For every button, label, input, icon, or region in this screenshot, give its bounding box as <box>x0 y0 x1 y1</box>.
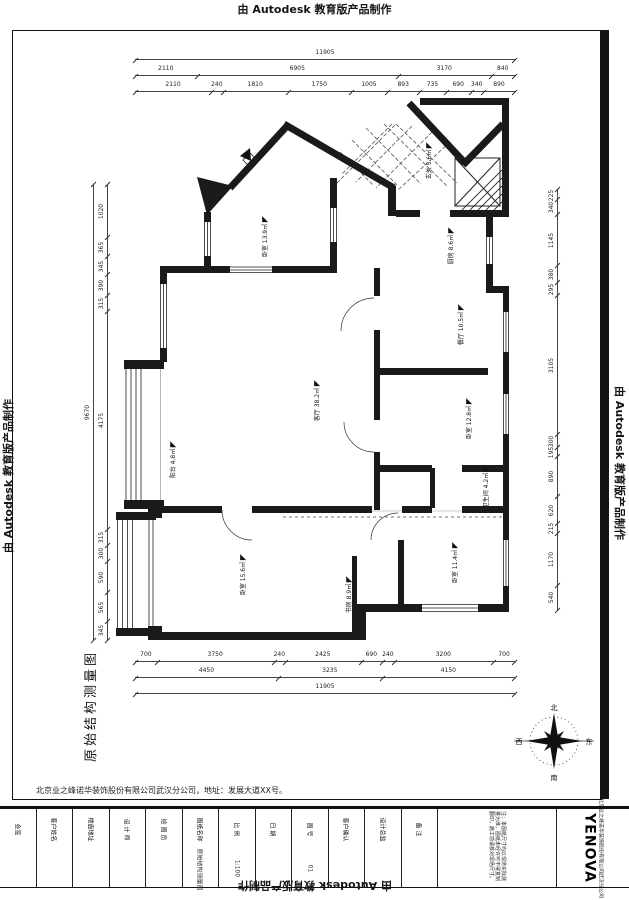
dim-value: 2110 <box>135 80 211 91</box>
dim-value: 225 <box>546 190 557 200</box>
title-block-cell-label: 绘 图 员 <box>159 819 168 841</box>
room-label: 玄关 5.6㎡ <box>424 142 433 179</box>
room-flag-icon <box>452 542 458 548</box>
room-name-area: 卧室 11.4㎡ <box>450 550 459 583</box>
room-name-area: 卫生间 4.2㎡ <box>481 473 490 508</box>
title-block-cell: 图 号01 <box>291 809 328 887</box>
dim-value: 300 <box>96 546 107 562</box>
dim-bottom-row1: 700375024024256902403200700 <box>135 650 515 662</box>
room-flag-icon <box>426 142 432 148</box>
room-label: 餐厅 10.5㎡ <box>456 304 465 345</box>
title-block-cell-label: 设计总监 <box>378 817 387 841</box>
title-block-cell-label: 备 注 <box>415 823 424 837</box>
dim-value: 1145 <box>546 215 557 266</box>
title-block-cell-label: 客户确认 <box>342 817 351 841</box>
title-block-cell-label: 日 期 <box>269 823 278 837</box>
dim-value: 295 <box>546 283 557 296</box>
company-name: 北京业之峰诺华装饰股份有限公司武汉分公司 <box>598 798 605 898</box>
dim-value: 1170 <box>546 534 557 586</box>
autodesk-watermark-top: 由 Autodesk 教育版产品制作 <box>237 1 391 17</box>
dim-value: 2425 <box>285 650 361 661</box>
room-name-area: 客厅 38.2㎡ <box>312 388 321 421</box>
room-name-area: 厨房 8.6㎡ <box>446 235 455 264</box>
dim-value: 390 <box>96 275 107 295</box>
room-flag-icon <box>170 441 176 447</box>
title-block-cell: 客户确认 <box>328 809 365 887</box>
room-name-area: 阳台 4.8㎡ <box>168 449 177 478</box>
dim-value: 11905 <box>135 48 515 59</box>
room-name-area: 卧室 13.9㎡ <box>260 224 269 257</box>
dim-value: 240 <box>211 80 222 91</box>
dim-value: 240 <box>274 650 285 661</box>
room-label: 阳台 4.8㎡ <box>168 441 177 478</box>
dim-value: 3750 <box>157 650 274 661</box>
dim-value: 380 <box>546 266 557 283</box>
title-block-cell: 图纸名称原始结构测量图 <box>182 809 219 887</box>
dim-value: 690 <box>446 80 471 91</box>
room-name-area: 书房 8.9㎡ <box>344 584 353 613</box>
dim-value: 195 <box>546 448 557 457</box>
dim-value: 4175 <box>96 312 107 530</box>
room-flag-icon <box>262 216 268 222</box>
title-block-cell-label: 比 例 <box>232 823 241 837</box>
dim-top-row1: 211069053170840 <box>135 64 515 76</box>
title-block-cell: 客户姓名 <box>36 809 73 887</box>
room-label: 卫生间 4.2㎡ <box>481 465 490 508</box>
dim-value: 3105 <box>546 296 557 434</box>
dim-value: 9670 <box>82 185 93 640</box>
dim-value: 735 <box>419 80 446 91</box>
title-block-cell: 备 注 <box>401 809 438 887</box>
title-block-cell-value: 原始结构测量图 <box>196 848 205 890</box>
title-block-cell: 比 例1:100 <box>218 809 255 887</box>
room-flag-icon <box>458 304 464 310</box>
title-block-cell: 设计总监 <box>364 809 401 887</box>
yenova-logo: YENOVA <box>582 798 598 898</box>
dim-value: 3200 <box>394 650 494 661</box>
title-block-cell-value: 1:100 <box>233 860 240 877</box>
title-block-cell-label: 图纸名称 <box>196 817 205 841</box>
dim-value: 1810 <box>223 80 288 91</box>
notes-text: 注：本图纸尺寸均以现场实际测量为准，图纸未经许可不得复制翻印，施工前请核对现场尺… <box>488 811 506 885</box>
dim-value: 690 <box>361 650 382 661</box>
dim-value: 565 <box>96 593 107 622</box>
dim-value: 700 <box>493 650 515 661</box>
dim-value: 365 <box>96 238 107 257</box>
dim-value: 590 <box>96 562 107 593</box>
room-label: 卧室 12.8㎡ <box>464 398 473 439</box>
dim-value: 540 <box>546 586 557 610</box>
dim-value: 2110 <box>135 64 197 75</box>
title-block-cell: 设 计 师 <box>109 809 146 887</box>
dim-value: 315 <box>96 296 107 312</box>
room-label: 卧室 11.4㎡ <box>450 542 459 583</box>
drawing-title: 原始结构测量图 <box>80 650 99 762</box>
dim-value: 1020 <box>96 185 107 238</box>
dim-value: 6905 <box>197 64 398 75</box>
title-block-cells: 会签客户姓名楼盘地址设 计 师绘 图 员图纸名称原始结构测量图比 例1:100日… <box>0 809 437 887</box>
sheet-border-heavy-bar <box>600 30 609 799</box>
title-block: 会签客户姓名楼盘地址设 计 师绘 图 员图纸名称原始结构测量图比 例1:100日… <box>0 806 629 888</box>
title-block-notes-cell: 注：本图纸尺寸均以现场实际测量为准，图纸未经许可不得复制翻印，施工前请核对现场尺… <box>437 809 556 887</box>
room-name-area: 卧室 12.8㎡ <box>464 406 473 439</box>
dim-value: 240 <box>382 650 393 661</box>
dim-left-total: 9670 <box>82 185 94 640</box>
dim-value: 4450 <box>135 666 278 677</box>
dim-top-row2: 2110240181017501005893735690340890 <box>135 80 515 92</box>
dim-value: 840 <box>491 64 516 75</box>
dim-value: 345 <box>96 257 107 275</box>
room-label: 客厅 38.2㎡ <box>312 380 321 421</box>
dim-value: 893 <box>387 80 419 91</box>
title-block-cell: 会签 <box>0 809 36 887</box>
title-block-cell-label: 设 计 师 <box>123 819 132 841</box>
room-label: 卧室 15.6㎡ <box>238 554 247 595</box>
room-flag-icon <box>346 576 352 582</box>
title-block-cell-label: 楼盘地址 <box>86 817 95 841</box>
room-label: 书房 8.9㎡ <box>344 576 353 613</box>
dim-value: 700 <box>135 650 157 661</box>
room-flag-icon <box>483 465 489 471</box>
title-block-cell-label: 图 号 <box>305 823 314 837</box>
dim-value: 345 <box>96 622 107 640</box>
title-block-cell-label: 客户姓名 <box>50 817 59 841</box>
dim-value: 620 <box>546 497 557 525</box>
room-flag-icon <box>240 554 246 560</box>
dim-value: 340 <box>471 80 483 91</box>
dim-bottom-total: 11905 <box>135 682 515 694</box>
dim-value: 890 <box>546 457 557 497</box>
title-block-cell-value: 01 <box>306 865 313 873</box>
title-block-cell: 楼盘地址 <box>72 809 109 887</box>
title-block-cell: 绘 图 员 <box>145 809 182 887</box>
title-block-company-cell: 北京业之峰诺华装饰股份有限公司武汉分公司 YENOVA <box>556 809 629 887</box>
room-flag-icon <box>448 227 454 233</box>
room-flag-icon <box>466 398 472 404</box>
title-block-cell: 日 期 <box>255 809 292 887</box>
dim-value: 4150 <box>382 666 515 677</box>
dim-value: 890 <box>483 80 515 91</box>
dim-value: 1005 <box>351 80 387 91</box>
dim-value: 1750 <box>288 80 351 91</box>
company-address-line: 北京业之峰诺华装饰股份有限公司武汉分公司，地址：发展大道XX号。 <box>36 785 287 796</box>
room-label: 厨房 8.6㎡ <box>446 227 455 264</box>
autodesk-watermark-right: 由 Autodesk 教育版产品制作 <box>612 333 628 593</box>
dim-value: 3170 <box>398 64 490 75</box>
dim-value: 3235 <box>278 666 382 677</box>
title-block-cell-label: 会签 <box>13 823 22 835</box>
room-name-area: 卧室 15.6㎡ <box>238 562 247 595</box>
room-label: 卧室 13.9㎡ <box>260 216 269 257</box>
dim-value: 340 <box>546 200 557 215</box>
dim-value: 315 <box>96 530 107 546</box>
dim-bottom-row2: 445032354150 <box>135 666 515 678</box>
dim-right-chain: 2253401145380295310530019589062021511705… <box>546 190 558 610</box>
room-flag-icon <box>314 380 320 386</box>
dim-top-total: 11905 <box>135 48 515 60</box>
room-name-area: 餐厅 10.5㎡ <box>456 312 465 345</box>
dim-value: 215 <box>546 524 557 534</box>
dim-left-chain: 10203653453903154175315300590565345 <box>96 185 108 640</box>
room-name-area: 玄关 5.6㎡ <box>424 150 433 179</box>
dim-value: 11905 <box>135 682 515 693</box>
